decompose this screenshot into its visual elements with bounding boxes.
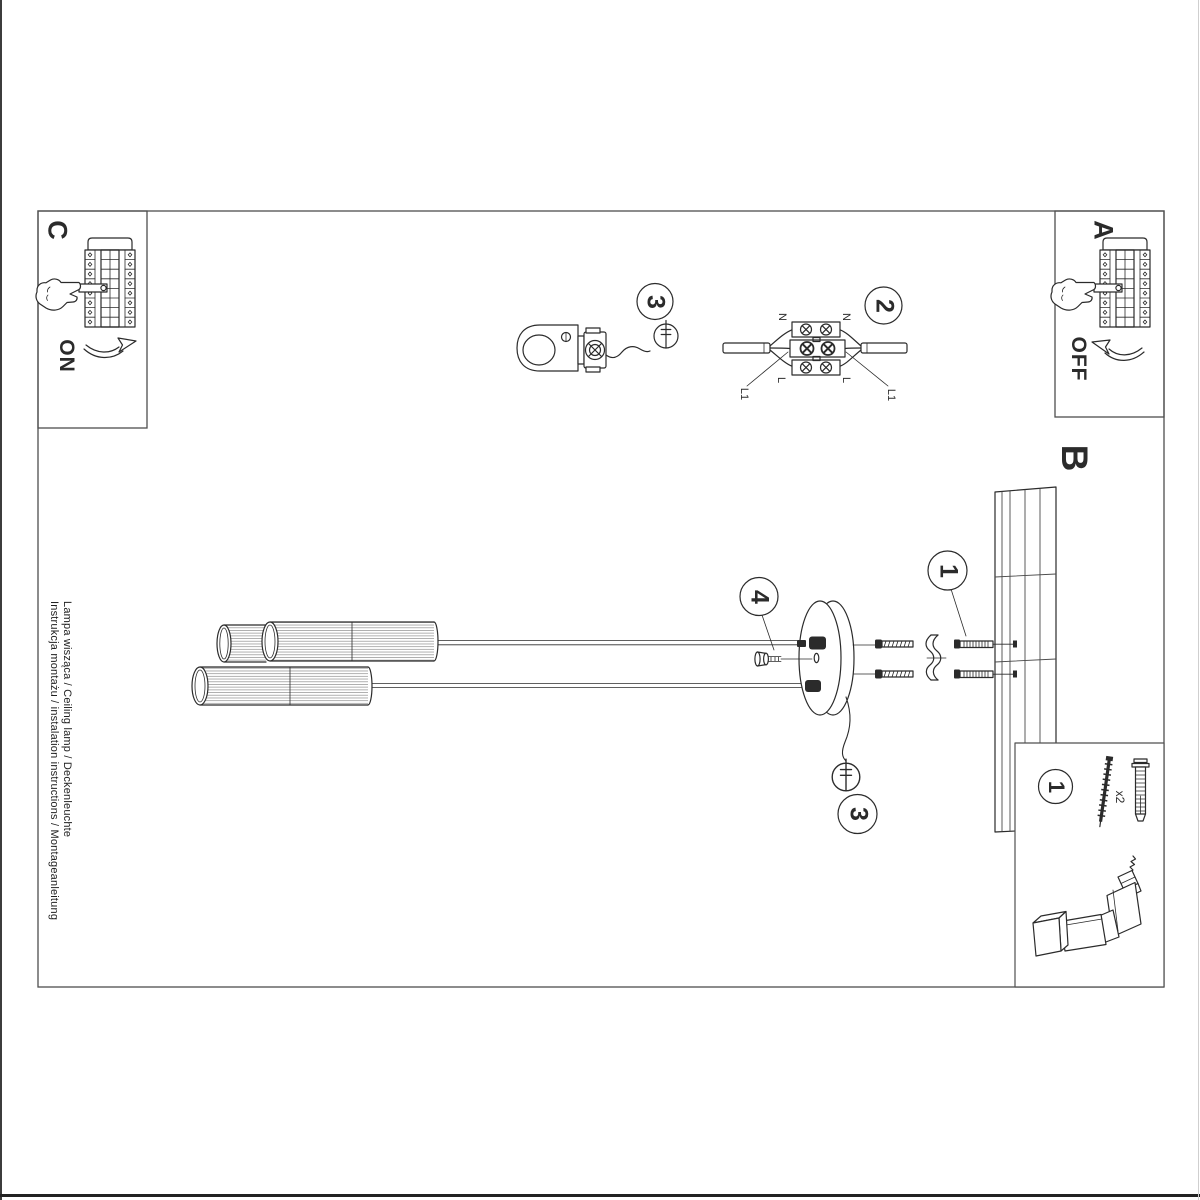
- step-circle-2: 2: [870, 299, 899, 313]
- screwdriver-icon: [832, 759, 860, 791]
- footer-title-line1: Instrukcja montażu / instalation instruc…: [47, 601, 60, 991]
- diagram-linework: [0, 0, 1200, 1200]
- screw-bottom: [875, 670, 913, 679]
- wall-plug-top: [954, 640, 1017, 649]
- terminal-block-drawing: [723, 322, 907, 386]
- instruction-sheet: C A B ON OFF 3 2 4 1 3 1 N N L L L1 L1 x…: [0, 0, 1200, 1200]
- hanger-rod-top: [438, 641, 799, 645]
- photo-edge-left: [0, 0, 2, 1200]
- terminal-label-n-right: N: [840, 313, 852, 321]
- section-b-label: B: [1053, 445, 1095, 472]
- screwdriver-icon: [654, 321, 678, 349]
- step-circle-3a: 3: [641, 295, 670, 309]
- terminal-label-n-left: N: [776, 313, 788, 321]
- tube-large-bottom: [192, 667, 372, 705]
- step-circles: [637, 284, 1073, 834]
- switch-on-label: ON: [54, 339, 78, 373]
- photo-edge-bottom: [0, 1194, 1200, 1197]
- terminal-label-l1-right: L1: [885, 389, 897, 401]
- rod-connector-bottom: [805, 680, 821, 692]
- lamp-tubes-drawing: [192, 622, 804, 705]
- leader-step1: [951, 589, 966, 636]
- tube-large-top: [262, 622, 438, 661]
- mounting-hardware-drawing: [875, 589, 1017, 680]
- parts-quantity-label: x2: [1113, 791, 1127, 804]
- breaker-on-drawing: [36, 238, 136, 358]
- rod-connector-top: [809, 637, 826, 650]
- photo-edge-right: [1198, 0, 1199, 1200]
- section-c-label: C: [42, 220, 73, 240]
- section-a-label: A: [1088, 220, 1119, 240]
- footer-title-line2: Lampa wisząca / Ceiling lamp / Deckenleu…: [60, 601, 73, 991]
- arrow-off-icon: [1092, 340, 1144, 360]
- terminal-label-l1-left: L1: [738, 388, 750, 400]
- step-circle-1b: 1: [1043, 781, 1069, 793]
- tube-small: [217, 625, 266, 662]
- terminal-label-l-right: L: [840, 377, 852, 383]
- step-circle-1a: 1: [934, 564, 963, 578]
- step-circle-4: 4: [745, 590, 774, 604]
- switch-off-label: OFF: [1066, 337, 1090, 382]
- parts-box: [1015, 743, 1164, 987]
- strain-relief-drawing: [517, 321, 678, 373]
- canopy-drawing: [755, 601, 876, 791]
- screw-top: [875, 640, 913, 649]
- step-circle-3b: 3: [844, 807, 873, 821]
- wall-plug-bottom: [954, 670, 1017, 679]
- footer-title: Instrukcja montażu / instalation instruc…: [47, 601, 73, 991]
- arrow-on-icon: [84, 338, 136, 358]
- mounting-bracket: [926, 635, 946, 680]
- wire-curve: [606, 347, 650, 358]
- hanger-rod-bottom: [372, 684, 804, 688]
- terminal-label-l-left: L: [775, 377, 787, 383]
